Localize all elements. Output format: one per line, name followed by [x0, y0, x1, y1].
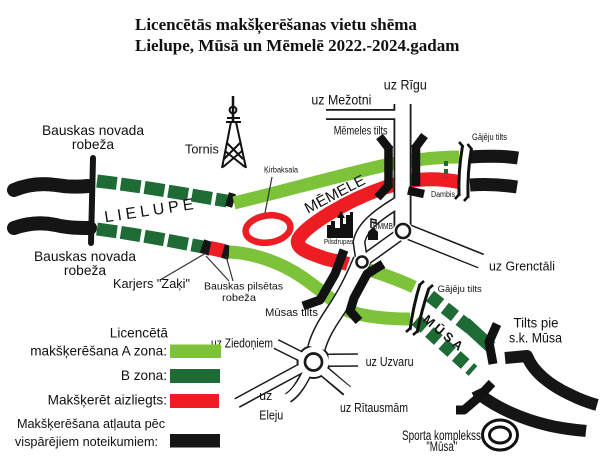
svg-text:Pilsdrupas: Pilsdrupas — [324, 237, 353, 246]
svg-text:robeža: robeža — [72, 137, 115, 152]
svg-text:Licencētās makšķerēšanas vietu: Licencētās makšķerēšanas vietu shēma — [135, 15, 417, 35]
svg-text:Mēmeles tilts: Mēmeles tilts — [334, 124, 388, 138]
svg-text:Dambis: Dambis — [431, 190, 455, 199]
svg-text:Tilts pie: Tilts pie — [514, 315, 559, 330]
svg-text:Gājēju tilts: Gājēju tilts — [472, 132, 507, 142]
svg-text:Mūsas tilts: Mūsas tilts — [265, 307, 318, 319]
svg-text:Lielupe, Mūsā un Mēmelē 2022.-: Lielupe, Mūsā un Mēmelē 2022.-2024.gadam — [135, 36, 459, 55]
svg-text:uz Mežotni: uz Mežotni — [311, 93, 371, 108]
svg-text:vispārējiem noteikumiem:: vispārējiem noteikumiem: — [15, 435, 158, 449]
svg-text:uz Rīgu: uz Rīgu — [384, 77, 427, 92]
svg-text:robeža: robeža — [64, 263, 107, 278]
svg-text:Makšķerēt aizliegts:: Makšķerēt aizliegts: — [48, 393, 167, 408]
svg-text:s.k. Mūsa: s.k. Mūsa — [509, 331, 562, 346]
svg-text:Gājēju tilts: Gājēju tilts — [438, 284, 483, 294]
svg-text:B zona:: B zona: — [121, 368, 167, 383]
svg-text:Ķirbaksala: Ķirbaksala — [264, 166, 298, 175]
svg-text:Licencētā: Licencētā — [110, 326, 169, 341]
svg-text:uz Grenctāli: uz Grenctāli — [489, 259, 555, 274]
svg-text:Bauskas novada: Bauskas novada — [42, 123, 144, 138]
svg-text:uz Rītausmām: uz Rītausmām — [340, 400, 408, 415]
svg-text:"Mūsa": "Mūsa" — [426, 439, 457, 454]
svg-text:uz: uz — [259, 388, 272, 403]
svg-text:Tornis: Tornis — [185, 143, 219, 157]
svg-text:BMMB: BMMB — [373, 221, 393, 231]
svg-text:Eleju: Eleju — [259, 408, 283, 423]
svg-text:Bauskas pilsētas: Bauskas pilsētas — [204, 282, 283, 293]
svg-text:uz Uzvaru: uz Uzvaru — [366, 354, 414, 369]
svg-text:makšķerēšana A zona:: makšķerēšana A zona: — [30, 343, 167, 358]
svg-text:Bauskas novada: Bauskas novada — [34, 249, 136, 264]
svg-text:Karjers "Zaķi": Karjers "Zaķi" — [113, 277, 190, 291]
svg-text:robeža: robeža — [222, 293, 256, 304]
svg-text:Makšķerēšana atļauta pēc: Makšķerēšana atļauta pēc — [17, 417, 166, 431]
